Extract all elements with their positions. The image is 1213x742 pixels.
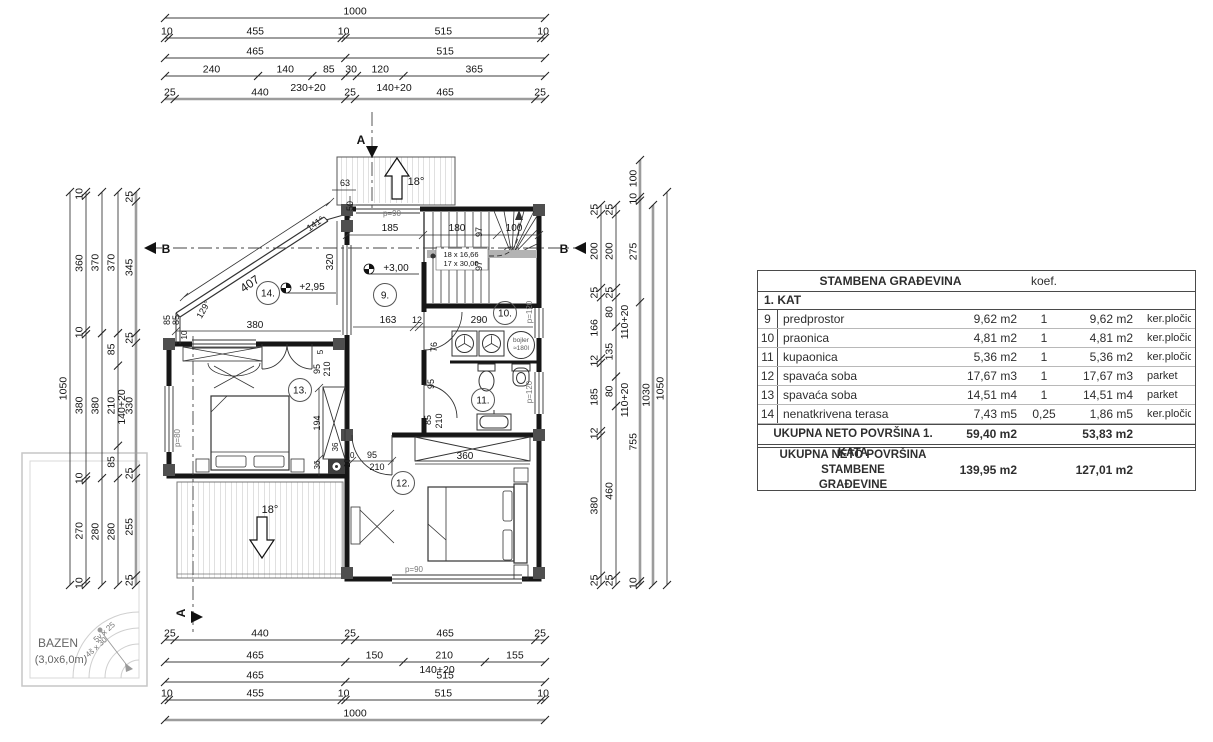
plan-label: p=120	[525, 300, 534, 323]
dim-label: 380	[589, 497, 601, 515]
dim-label: 755	[628, 433, 640, 451]
dim-label: 1000	[343, 708, 367, 720]
dim-label: 1000	[343, 6, 367, 18]
area-table-body: 9predprostor9,62 m219,62 m2ker.pločice10…	[758, 310, 1195, 424]
wardrobe-room13	[183, 347, 262, 388]
dim-label: 10	[161, 688, 173, 700]
doors	[262, 312, 462, 475]
dim-label: 25	[164, 628, 176, 640]
dim-label: 200	[589, 242, 601, 260]
table-total-building: UKUPNA NETO POVRŠINA STAMBENE GRAĐEVINE …	[758, 448, 1195, 490]
plan-label: 18°	[262, 504, 279, 516]
plan-label: 290	[471, 315, 488, 326]
plan-label: p=120	[525, 380, 534, 403]
plan-label: 76	[429, 342, 439, 352]
plan-label: 17 x 30,00	[443, 259, 478, 268]
dim-label: 25	[124, 191, 136, 203]
table-row: 11kupaonica5,36 m215,36 m2ker.pločice	[758, 348, 1195, 367]
plan-label: 95	[312, 364, 322, 374]
room-number: 11.	[472, 389, 495, 412]
plan-label: 63	[340, 178, 350, 188]
dim-label: 270	[74, 522, 86, 540]
dim-label: 10	[74, 188, 86, 200]
dim-label: 360	[74, 254, 86, 272]
dim-label: 280	[90, 523, 102, 541]
dim-label: 455	[246, 688, 264, 700]
dim-label: 25	[124, 574, 136, 586]
dim-label: 370	[90, 254, 102, 272]
dim-label: 10	[74, 577, 86, 589]
plan-label: A	[357, 133, 366, 147]
room-number-text: 14.	[261, 289, 275, 300]
dim-label: 10	[338, 26, 350, 38]
dim-label: 25	[534, 87, 546, 99]
dim-label: 12	[589, 427, 601, 439]
room-number-text: 12.	[396, 479, 410, 490]
plan-label: bojler	[513, 337, 530, 344]
plan-label: 85	[423, 415, 433, 425]
dim-label: 365	[465, 64, 483, 76]
dim-label: 140+20	[116, 389, 128, 424]
dim-label: 440	[251, 87, 269, 99]
plan-label: p=90	[383, 209, 402, 218]
dim-label: 25	[604, 287, 616, 299]
dim-label: 120	[371, 64, 389, 76]
window-room11-east	[533, 372, 545, 414]
dim-label: 85	[106, 456, 118, 468]
dim-label: 515	[435, 26, 453, 38]
floor-plan-sheet: 1000104551051510465515240140853012036525…	[0, 0, 1213, 742]
roof-top	[337, 157, 455, 205]
dim-label: 280	[106, 523, 118, 541]
dim-label: 80	[604, 306, 616, 318]
plan-label: 407	[237, 272, 262, 295]
dim-label: 80	[604, 385, 616, 397]
total-building-label-line2: GRAĐEVINE	[758, 478, 948, 493]
total-building-area-reduced: 127,01 m2	[1065, 448, 1139, 493]
table-header: STAMBENA GRAĐEVINA koef.	[758, 271, 1195, 292]
plan-label: 97	[474, 227, 484, 237]
dresser-room12	[351, 507, 394, 544]
room-number: 14.	[257, 282, 280, 305]
dim-label: 230+20	[290, 82, 325, 94]
table-row: 14nenatkrivena terasa7,43 m50,251,86 m5k…	[758, 405, 1195, 424]
dim-label: 1030	[641, 383, 653, 407]
dim-label: 25	[164, 87, 176, 99]
plan-label: 100	[506, 223, 523, 234]
dim-label: 155	[506, 650, 524, 662]
section-arrow-A-top	[366, 146, 378, 158]
room-number: 12.	[392, 472, 415, 495]
dim-label: 465	[246, 670, 264, 682]
dim-label: 140	[276, 64, 294, 76]
dim-label: 25	[124, 467, 136, 479]
table-section-label: 1. KAT	[758, 292, 1195, 310]
area-table: STAMBENA GRAĐEVINA koef. 1. KAT 9predpro…	[757, 270, 1196, 491]
plan-label: 95	[367, 450, 377, 460]
total-building-label-line1: UKUPNA NETO POVRŠINA STAMBENE	[758, 448, 948, 478]
plan-label: 18 x 16,66	[443, 250, 478, 259]
dim-label: 210	[435, 650, 453, 662]
dim-label: 140+20	[376, 82, 411, 94]
dim-label: 10	[74, 472, 86, 484]
dim-label: 440	[251, 628, 269, 640]
window-hall-west	[341, 245, 353, 335]
room-number: 13.	[289, 379, 312, 402]
dim-label: 370	[106, 254, 118, 272]
plan-label: A	[174, 608, 188, 617]
plan-label: 185	[382, 223, 399, 234]
dim-label: 110+20	[619, 383, 631, 418]
dim-label: 275	[628, 243, 640, 261]
washing-machine	[479, 331, 504, 356]
total-building-area: 139,95 m2	[948, 448, 1023, 493]
dim-label: 185	[589, 388, 601, 406]
plan-label: 194	[312, 415, 322, 430]
room-number-text: 11.	[476, 396, 489, 407]
table-row: 10praonica4,81 m214,81 m2ker.pločice	[758, 329, 1195, 348]
dim-label: 455	[246, 26, 264, 38]
koef-header: koef.	[1023, 271, 1065, 291]
dim-label: 140+20	[419, 664, 454, 676]
dim-label: 10	[628, 193, 640, 205]
dim-label: 25	[344, 628, 356, 640]
plan-label: 36	[313, 460, 322, 469]
plan-label: 360	[457, 451, 474, 462]
roof-terrace-bottom	[177, 482, 343, 578]
dim-label: 380	[90, 397, 102, 415]
dim-label: 25	[124, 332, 136, 344]
dim-label: 25	[604, 574, 616, 586]
sink	[477, 410, 511, 430]
toilet	[478, 364, 495, 391]
section-arrow-B-left	[144, 242, 156, 254]
plan-label: p=80	[173, 428, 182, 447]
plan-label: 18°	[408, 176, 425, 188]
dim-label: 10	[537, 26, 549, 38]
room-number-bubbles: 14.9.10.11.12.13.	[257, 282, 517, 495]
dim-label: 10	[628, 577, 640, 589]
plan-label: ≈180l	[513, 345, 529, 352]
plan-label: 163	[380, 315, 397, 326]
dim-label: 1050	[58, 377, 70, 401]
plan-label: 36	[331, 442, 340, 451]
dim-label: 465	[246, 650, 264, 662]
room-number: 9.	[374, 284, 397, 307]
plan-label: B	[162, 242, 171, 256]
plan-label: 210	[369, 462, 384, 472]
dim-label: 10	[338, 688, 350, 700]
bed-room12	[428, 468, 528, 579]
dim-label: 460	[604, 482, 616, 500]
table-total-floor: UKUPNA NETO POVRŠINA 1. KATA 59,40 m2 53…	[758, 424, 1195, 448]
dimension-lines	[66, 14, 671, 724]
plan-label: 12	[412, 315, 422, 325]
dim-label: 25	[589, 287, 601, 299]
dim-label: 25	[589, 574, 601, 586]
dim-label: 10	[537, 688, 549, 700]
dim-label: 25	[604, 204, 616, 216]
washing-machine	[452, 331, 477, 356]
table-row: 9predprostor9,62 m219,62 m2ker.pločice	[758, 310, 1195, 329]
plan-label: 85	[171, 315, 181, 325]
dim-label: 345	[124, 258, 136, 276]
plan-label: 380	[247, 320, 264, 331]
plan-label: p=90	[405, 565, 424, 574]
table-title: STAMBENA GRAĐEVINA	[758, 271, 1023, 291]
plan-label: 320	[325, 253, 336, 270]
dim-label: 465	[246, 46, 264, 58]
dim-label: 515	[435, 688, 453, 700]
plan-label: +2,95	[299, 282, 325, 293]
room-number-text: 9.	[381, 291, 389, 302]
plan-label: 210	[434, 413, 444, 428]
window-room12-south	[392, 573, 522, 585]
table-row: 13spavaća soba14,51 m4114,51 m4parket	[758, 386, 1195, 405]
dim-label: 10	[74, 326, 86, 338]
dim-label: 255	[124, 518, 136, 536]
dim-label: 110+20	[619, 305, 631, 340]
plan-label: 129°	[194, 299, 212, 320]
plan-label: 50	[345, 201, 355, 211]
window-room10-east	[533, 308, 545, 338]
dim-label: 10	[161, 26, 173, 38]
dim-label: 85	[323, 64, 335, 76]
section-arrow-B-right	[574, 242, 586, 254]
plan-label: BAZEN	[38, 636, 78, 650]
dim-label: 240	[203, 64, 221, 76]
dim-label: 515	[436, 46, 454, 58]
dim-label: 150	[366, 650, 384, 662]
window-room13-north	[192, 338, 256, 350]
door-room13-double	[262, 344, 312, 369]
plan-label: 95	[426, 379, 436, 389]
plan-label: (3,0x6,0m)	[35, 654, 88, 666]
dim-label: 200	[604, 242, 616, 260]
dim-label: 1050	[655, 377, 667, 401]
section-arrow-A-bottom	[191, 611, 203, 623]
dim-label: 25	[589, 204, 601, 216]
plan-label: B	[560, 242, 569, 256]
dim-label: 25	[344, 87, 356, 99]
room-number-text: 13.	[293, 386, 307, 397]
plan-label: 10	[343, 458, 352, 467]
dim-label: 166	[589, 319, 601, 337]
bed-room13	[196, 396, 304, 472]
dim-label: 380	[74, 396, 86, 414]
table-row: 12spavaća soba17,67 m3117,67 m3parket	[758, 367, 1195, 386]
dim-label: 85	[106, 343, 118, 355]
plan-label: +3,00	[383, 263, 409, 274]
dim-label: 25	[534, 628, 546, 640]
room-number-text: 10.	[498, 309, 512, 320]
dim-label: 465	[436, 87, 454, 99]
dim-label: 465	[436, 628, 454, 640]
plan-label: 210	[322, 361, 332, 376]
plan-label: 10	[180, 330, 189, 339]
dim-label: 135	[604, 343, 616, 361]
plan-label: 5	[316, 349, 325, 354]
dim-label: 100	[628, 170, 640, 188]
plan-label: 180	[449, 223, 466, 234]
dim-label: 30	[345, 64, 357, 76]
dim-label: 12	[589, 355, 601, 367]
